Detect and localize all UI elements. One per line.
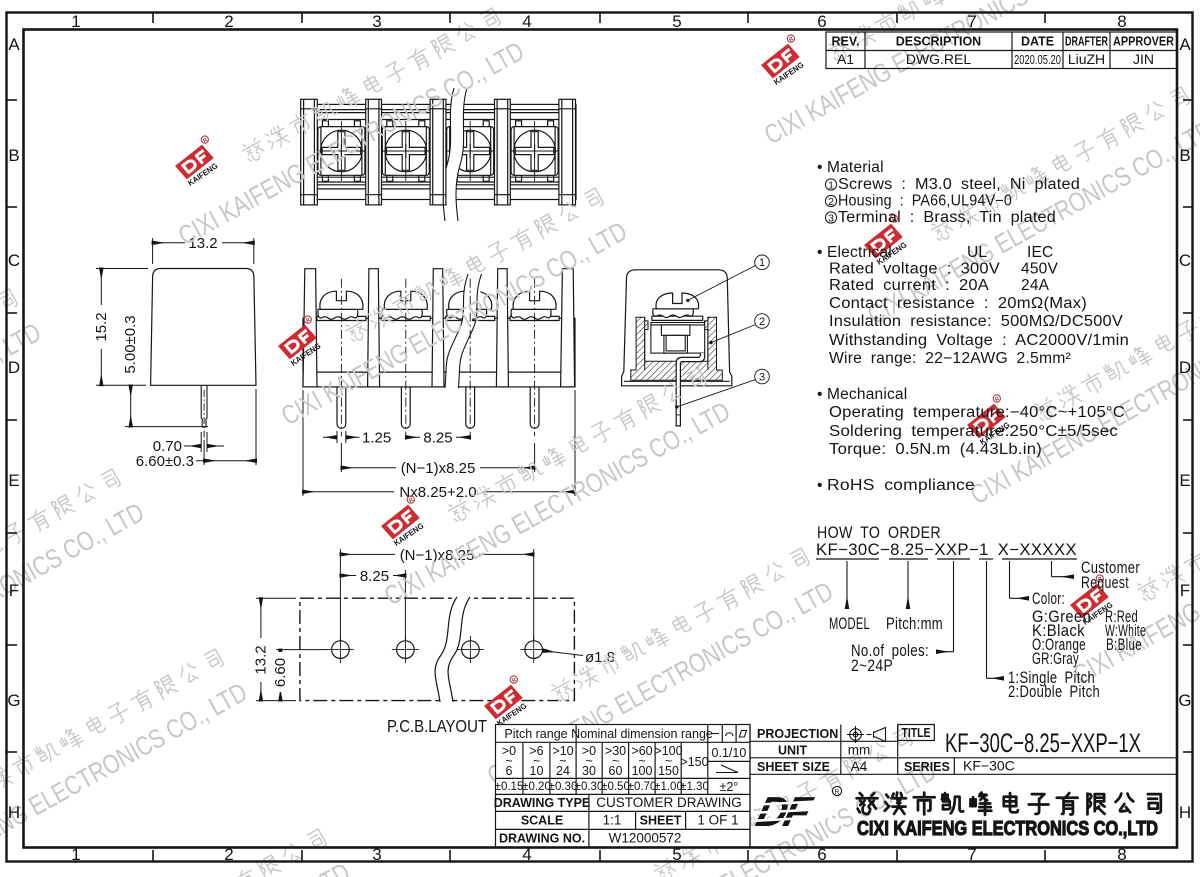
svg-text:CIXI KAIFENG ELECTRONICS CO: CIXI KAIFENG ELECTRONICS CO., LTD xyxy=(379,396,735,611)
svg-text:KF−30C: KF−30C xyxy=(963,758,1015,774)
svg-text:A: A xyxy=(8,35,20,54)
svg-text:100: 100 xyxy=(632,764,653,778)
svg-text:H: H xyxy=(1179,803,1191,822)
svg-text:Nominal dimension range: Nominal dimension range xyxy=(571,727,713,741)
svg-text:Screws : M3.0 steel, Ni plated: Screws : M3.0 steel, Ni plated xyxy=(838,176,1080,193)
svg-text:6.60±0.3: 6.60±0.3 xyxy=(136,453,194,470)
svg-text:H: H xyxy=(8,803,20,822)
svg-text:•: • xyxy=(817,159,823,176)
svg-text:•: • xyxy=(817,477,823,494)
svg-text:Withstanding Voltage : AC2000V: Withstanding Voltage : AC2000V/1min xyxy=(829,332,1129,349)
svg-text:A4: A4 xyxy=(851,759,868,774)
svg-text:Terminal : Brass, Tin plated: Terminal : Brass, Tin plated xyxy=(838,209,1056,226)
svg-text:8: 8 xyxy=(1117,845,1126,864)
svg-text:CIXI KAIFENG ELECTRONICS CO: CIXI KAIFENG ELECTRONICS CO., LTD xyxy=(759,0,1115,150)
svg-text:mm: mm xyxy=(848,743,871,758)
svg-text:Contact resistance : 20mΩ(Max): Contact resistance : 20mΩ(Max) xyxy=(829,295,1087,312)
svg-text:2:Double Pitch: 2:Double Pitch xyxy=(1008,683,1100,701)
svg-text:G: G xyxy=(1178,691,1191,710)
svg-text:B: B xyxy=(8,146,19,165)
svg-text:2: 2 xyxy=(759,316,765,328)
svg-text:•: • xyxy=(817,244,823,261)
svg-text:(N−1)x8.25: (N−1)x8.25 xyxy=(401,460,476,477)
svg-text:MODEL: MODEL xyxy=(829,615,870,633)
svg-text:CIXI KAIFENG ELECTRONICS CO.,L: CIXI KAIFENG ELECTRONICS CO.,LTD xyxy=(857,817,1158,840)
svg-text:±0.30: ±0.30 xyxy=(549,781,578,793)
svg-text:Insulation resistance: 500MΩ/D: Insulation resistance: 500MΩ/DC500V xyxy=(829,313,1123,330)
svg-text:DRAWING NO.: DRAWING NO. xyxy=(499,832,585,846)
svg-text:LiuZH: LiuZH xyxy=(1068,51,1105,67)
svg-text:>150: >150 xyxy=(680,755,708,769)
svg-text:F: F xyxy=(9,581,19,600)
svg-text:±1.00: ±1.00 xyxy=(654,781,683,793)
svg-text:±0.30: ±0.30 xyxy=(575,781,604,793)
svg-text:D: D xyxy=(8,358,20,377)
svg-text:DATE: DATE xyxy=(1021,35,1054,49)
svg-text:2020.05.20: 2020.05.20 xyxy=(1014,52,1061,67)
svg-text:5: 5 xyxy=(672,845,681,864)
svg-text:6.60: 6.60 xyxy=(272,658,289,687)
svg-text:F: F xyxy=(1180,581,1190,600)
svg-text:Mechanical: Mechanical xyxy=(827,386,907,403)
svg-text:Request: Request xyxy=(1081,574,1129,592)
svg-text:D: D xyxy=(1179,358,1191,377)
svg-text:2: 2 xyxy=(224,845,233,864)
svg-text:Soldering temperature:250°C±5/: Soldering temperature:250°C±5/5sec xyxy=(829,423,1118,440)
svg-text:Wire range: 22−12AWG 2.5mm²: Wire range: 22−12AWG 2.5mm² xyxy=(829,350,1071,367)
svg-text:SHEET SIZE: SHEET SIZE xyxy=(757,760,830,774)
svg-text:Rated current : 20A: Rated current : 20A xyxy=(829,277,989,294)
svg-text:7: 7 xyxy=(967,845,976,864)
svg-text:SERIES: SERIES xyxy=(904,760,950,774)
svg-text:SCALE: SCALE xyxy=(521,814,563,828)
svg-text:24A: 24A xyxy=(1021,277,1050,294)
svg-text:•: • xyxy=(817,386,823,403)
svg-text:4: 4 xyxy=(522,845,531,864)
svg-text:7: 7 xyxy=(967,12,976,31)
svg-text:JIN: JIN xyxy=(1133,51,1154,67)
svg-text:B: B xyxy=(1179,146,1190,165)
svg-text:2: 2 xyxy=(224,12,233,31)
svg-text:DRAWING TYPE: DRAWING TYPE xyxy=(494,796,591,810)
svg-text:SHEET: SHEET xyxy=(640,814,682,828)
svg-text:Color:: Color: xyxy=(1032,590,1065,608)
svg-text:8.25: 8.25 xyxy=(423,430,452,447)
svg-text:W12000572: W12000572 xyxy=(609,831,682,846)
svg-text:1: 1 xyxy=(759,257,765,269)
svg-text:Operating temperature:−40°C~+1: Operating temperature:−40°C~+105°C xyxy=(829,404,1125,421)
svg-text:DESCRIPTION: DESCRIPTION xyxy=(896,35,981,49)
svg-text:Rated voltage : 300V: Rated voltage : 300V xyxy=(829,261,1000,278)
svg-text:5: 5 xyxy=(672,12,681,31)
svg-text:±0.15: ±0.15 xyxy=(495,781,524,793)
svg-text:Torque: 0.5N.m (4.43Lb.in): Torque: 0.5N.m (4.43Lb.in) xyxy=(829,441,1042,458)
svg-text:450V: 450V xyxy=(1021,261,1058,278)
svg-text:Electrical: Electrical xyxy=(827,244,892,261)
svg-text:RoHS compliance: RoHS compliance xyxy=(827,477,975,494)
svg-text:PROJECTION: PROJECTION xyxy=(757,727,838,741)
svg-text:±0.20: ±0.20 xyxy=(522,781,551,793)
svg-text:KF−30C−8.25−XXP−1 X−XXXXX: KF−30C−8.25−XXP−1 X−XXXXX xyxy=(816,541,1077,559)
svg-text:E: E xyxy=(8,471,19,490)
svg-text:1:1: 1:1 xyxy=(603,813,622,828)
svg-text:10: 10 xyxy=(530,764,544,778)
svg-text:0.1/10: 0.1/10 xyxy=(712,746,747,760)
svg-text:A: A xyxy=(1179,35,1191,54)
svg-text:3: 3 xyxy=(828,213,834,225)
svg-text:1: 1 xyxy=(71,845,80,864)
svg-text:Pitch:mm: Pitch:mm xyxy=(886,615,943,633)
svg-text:APPROVER: APPROVER xyxy=(1113,35,1174,49)
svg-text:±2°: ±2° xyxy=(719,780,738,794)
svg-text:KF−30C−8.25−XXP−1X: KF−30C−8.25−XXP−1X xyxy=(945,728,1141,758)
svg-text:Housing : PA66,UL94V−0: Housing : PA66,UL94V−0 xyxy=(838,193,1012,210)
svg-text:2: 2 xyxy=(828,196,834,208)
svg-text:3: 3 xyxy=(759,371,765,383)
svg-text:REV.: REV. xyxy=(831,35,859,49)
svg-text:150: 150 xyxy=(658,764,679,778)
svg-text:1.25: 1.25 xyxy=(362,430,391,447)
svg-text:DWG.REL: DWG.REL xyxy=(906,51,972,67)
svg-text:30: 30 xyxy=(582,764,596,778)
svg-text:6: 6 xyxy=(817,845,826,864)
svg-text:5.00±0.3: 5.00±0.3 xyxy=(122,315,139,373)
svg-text:±1.30: ±1.30 xyxy=(680,781,709,793)
svg-text:DRAFTER: DRAFTER xyxy=(1065,35,1108,49)
svg-text:P.C.B.LAYOUT: P.C.B.LAYOUT xyxy=(387,716,487,736)
svg-text:G: G xyxy=(7,691,20,710)
svg-text:±0.50: ±0.50 xyxy=(601,781,630,793)
svg-text:3: 3 xyxy=(372,12,381,31)
svg-text:C: C xyxy=(1179,251,1191,270)
svg-text:15.2: 15.2 xyxy=(93,312,110,341)
svg-text:4: 4 xyxy=(522,12,531,31)
svg-text:A1: A1 xyxy=(837,51,854,67)
svg-text:6: 6 xyxy=(506,764,513,778)
svg-text:GR:Gray: GR:Gray xyxy=(1032,650,1079,668)
svg-text:B:Blue: B:Blue xyxy=(1106,636,1142,654)
svg-text:HOW TO ORDER: HOW TO ORDER xyxy=(817,524,941,542)
svg-text:Pitch range: Pitch range xyxy=(504,727,567,741)
svg-text:TITLE: TITLE xyxy=(902,726,931,740)
svg-text:CUSTOMER DRAWING: CUSTOMER DRAWING xyxy=(596,795,742,810)
svg-text:13.2: 13.2 xyxy=(252,645,269,674)
svg-text:E: E xyxy=(1179,471,1190,490)
svg-text:±0.70: ±0.70 xyxy=(628,781,657,793)
svg-text:R: R xyxy=(835,789,840,796)
svg-text:1: 1 xyxy=(828,180,834,192)
svg-text:IEC: IEC xyxy=(1027,244,1053,261)
svg-text:3: 3 xyxy=(372,845,381,864)
svg-text:UL: UL xyxy=(967,244,987,261)
svg-text:1: 1 xyxy=(71,12,80,31)
svg-text:8: 8 xyxy=(1117,12,1126,31)
svg-text:1 OF 1: 1 OF 1 xyxy=(697,813,738,828)
svg-text:24: 24 xyxy=(556,764,570,778)
svg-text:Material: Material xyxy=(827,159,884,176)
svg-text:6: 6 xyxy=(817,12,826,31)
svg-text:2~24P: 2~24P xyxy=(851,657,893,675)
svg-text:UNIT: UNIT xyxy=(778,744,808,758)
svg-text:C: C xyxy=(8,251,20,270)
svg-text:60: 60 xyxy=(609,764,623,778)
